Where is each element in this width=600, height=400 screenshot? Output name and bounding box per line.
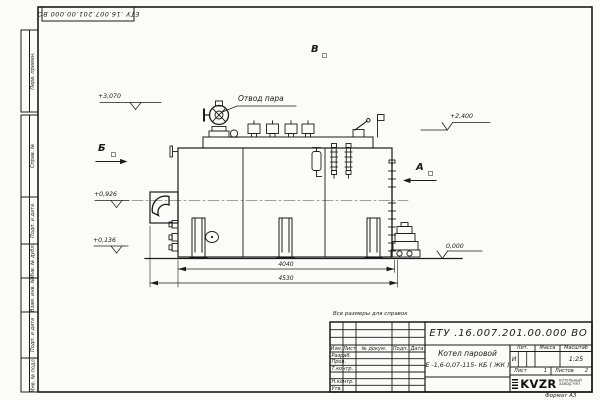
company-name: КОТЕЛЬНЫЙ ЗАВОД РЭП (559, 380, 582, 387)
view-label-a-mark (428, 171, 433, 176)
row-utv: Утв. (332, 386, 343, 392)
view-label-b: Б (98, 143, 106, 154)
view-label-v-mark (322, 53, 327, 58)
margin-box-inv-orig: Инв. № подл. (28, 358, 38, 392)
dimension-4040: 4040 (266, 261, 306, 268)
col-podp: Подп. (392, 345, 409, 352)
view-label-a: А (416, 162, 424, 173)
elevation-top: +3,070 (98, 93, 121, 100)
margin-box-first-use: Перв. примен. (28, 30, 38, 112)
sheets-total: 2 (585, 368, 588, 374)
col-dokum: № докум. (356, 345, 392, 352)
col-data: Дата (409, 345, 425, 352)
elevation-low: +0,136 (93, 237, 116, 244)
designation-cell: ЕТУ .16.007.201.00.000 ВО (425, 322, 592, 345)
mass-value (535, 352, 560, 368)
col-list: Лист (343, 345, 356, 352)
manhole (206, 232, 219, 243)
company-cell: KVZR КОТЕЛЬНЫЙ ЗАВОД РЭП (512, 375, 591, 392)
inverted-designation-box: ЕТУ .16.007.201.00.000 ВО (42, 7, 134, 21)
front-fittings (150, 146, 178, 251)
product-name-line2: Е -1,6-0,07-115- КБ ( ЖК ) (425, 359, 510, 371)
sheets-cell: Листов 2 (551, 367, 592, 375)
view-label-b-mark (111, 152, 116, 157)
margin-box-sign-date-1: Подп. и дата (28, 197, 38, 244)
reference-note: Все размеры для справок (333, 311, 408, 317)
row-tkontr: Т.контр. (332, 366, 354, 372)
safety-valve (353, 115, 384, 138)
elevation-zero: 0,000 (446, 243, 464, 250)
boiler-body (178, 137, 392, 257)
sheets-label: Листов (555, 368, 574, 374)
company-logo: KVZR (520, 377, 556, 391)
margin-box-inv-dupl: Инв. № дубл. (28, 244, 38, 278)
view-arrows (96, 159, 436, 183)
col-izm: Изм. (330, 345, 343, 352)
scale-value: 1:25 (560, 352, 592, 368)
margin-box-sign-date-2: Подп. и дата (28, 312, 38, 358)
dome-fitting (230, 130, 239, 137)
elevation-right: +2,400 (450, 113, 473, 120)
steam-outlet-label: Отвод пара (238, 94, 284, 103)
water-gauges (312, 144, 352, 179)
row-prov: Пров. (332, 359, 347, 365)
lit-value: И (510, 352, 518, 368)
kvzr-logo-icon (512, 379, 518, 389)
elevation-mid: +0,926 (94, 191, 117, 198)
sheet-cell: Лист 1 (510, 367, 551, 375)
sheet-label: Лист (514, 368, 527, 374)
dimension-4530: 4530 (266, 275, 306, 282)
view-label-v: В (311, 44, 319, 55)
margin-box-ref-number: Справ. № (28, 115, 38, 197)
sheet-number: 1 (544, 368, 547, 374)
top-hatches (248, 121, 314, 137)
margin-box-repl-inv: Взам. инв. № (28, 278, 38, 312)
inverted-designation: ЕТУ .16.007.201.00.000 ВО (37, 10, 139, 18)
rear-pipe (389, 160, 396, 257)
format-label: Формат А3 (545, 393, 576, 399)
steam-outlet-leader (223, 106, 297, 112)
drawing-sheet: ЕТУ .16.007.201.00.000 ВО Перв. примен. … (0, 0, 600, 400)
feed-pump (391, 223, 420, 258)
row-nkontr: Н.контр. (332, 379, 354, 385)
steam-outlet-valve (204, 101, 229, 137)
row-razrab: Разраб. (332, 353, 352, 359)
